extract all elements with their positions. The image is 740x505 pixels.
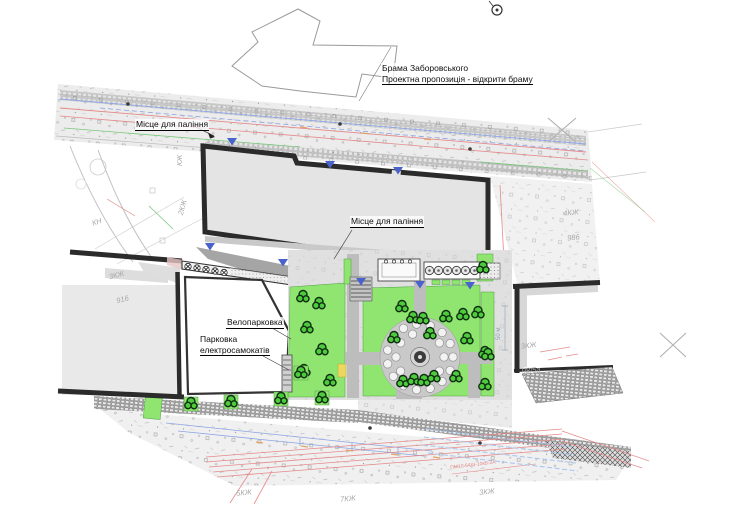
- pergola: [378, 259, 420, 281]
- smoking-area-label-center: Місце для паління: [350, 216, 424, 228]
- bottom-street: [94, 382, 649, 504]
- gate-annotation-line1: Брама Заборовського: [382, 63, 533, 74]
- site-plan-drawing: [0, 0, 740, 505]
- left-street: [70, 146, 209, 264]
- scooter-parking-label-line2: електросамокатів: [200, 345, 270, 357]
- scooter-parking-label-line1: Парковка: [200, 334, 270, 345]
- gate-annotation: Брама Заборовського Проектна пропозиція …: [381, 63, 534, 85]
- bike-parking-label: Велопарковка: [226, 317, 284, 329]
- courtyard: [282, 250, 512, 400]
- north-marker: [489, 1, 502, 15]
- dimension-label: 50 м: [496, 328, 502, 340]
- building-code-kzh: КЖ: [176, 155, 184, 166]
- gate-building-outline: [232, 9, 397, 97]
- pavilion: [282, 355, 292, 392]
- site-plan-page: Брама Заборовського Проектна пропозиція …: [0, 0, 740, 505]
- gate-annotation-line2: Проектна пропозиція - відкрити браму: [382, 74, 533, 86]
- scooter-parking-label: Парковка електросамокатів: [199, 334, 271, 356]
- smoking-area-label-left: Місце для паління: [135, 119, 209, 131]
